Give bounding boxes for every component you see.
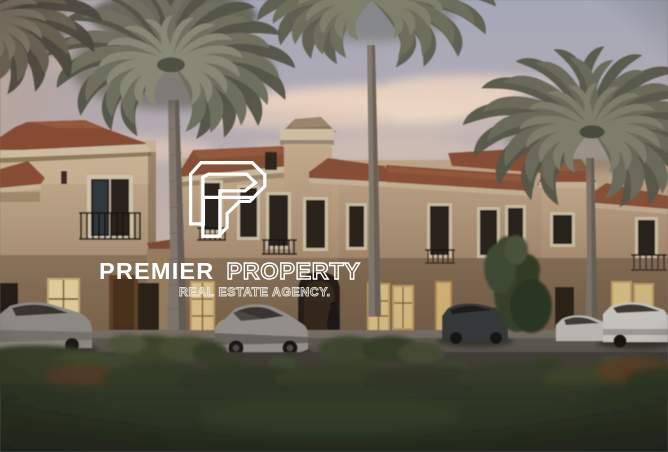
- svg-text:PREMIER: PREMIER: [99, 258, 214, 284]
- svg-text:REAL ESTATE AGENCY.: REAL ESTATE AGENCY.: [179, 285, 331, 299]
- svg-text:PROPERTY: PROPERTY: [227, 258, 361, 284]
